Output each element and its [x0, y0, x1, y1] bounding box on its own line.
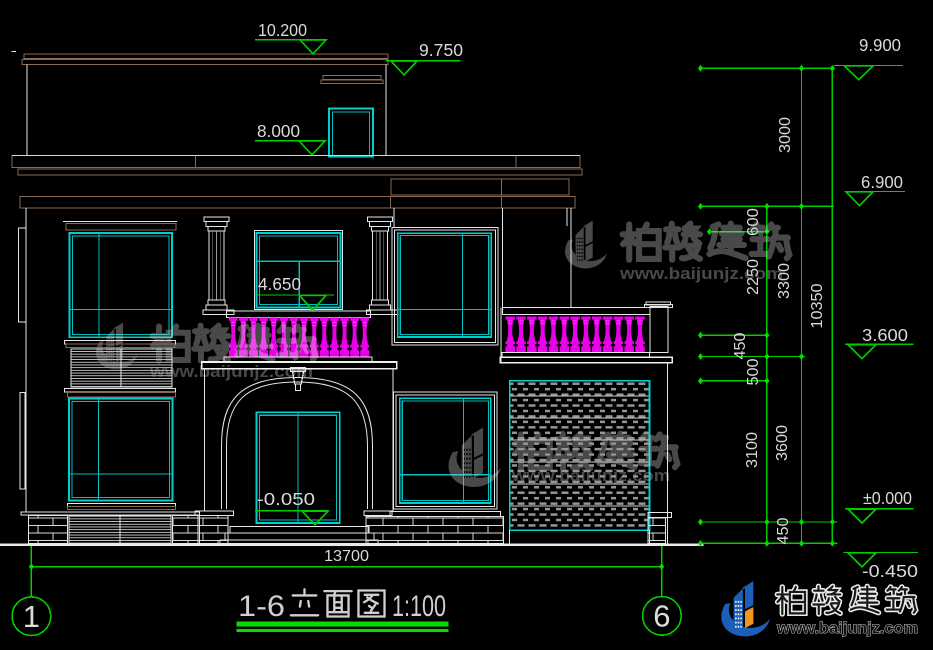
svg-text:450: 450 — [732, 332, 749, 359]
svg-text:1-6: 1-6 — [238, 590, 285, 623]
svg-text:10.200: 10.200 — [258, 20, 307, 40]
svg-text:13700: 13700 — [324, 548, 369, 565]
svg-text:3000: 3000 — [777, 117, 794, 153]
svg-text:±0.000: ±0.000 — [863, 488, 912, 508]
svg-text:8.000: 8.000 — [257, 121, 300, 141]
svg-text:6.900: 6.900 — [861, 172, 903, 192]
svg-text:9.900: 9.900 — [859, 35, 901, 55]
svg-text:9.750: 9.750 — [419, 40, 463, 60]
svg-text:-0.050: -0.050 — [257, 489, 315, 509]
svg-text:3.600: 3.600 — [862, 325, 908, 345]
svg-text:3100: 3100 — [744, 432, 761, 468]
svg-text:10350: 10350 — [809, 283, 826, 328]
svg-text:www.baijunjz.com: www.baijunjz.com — [149, 362, 313, 381]
svg-text:-0.450: -0.450 — [862, 561, 918, 581]
svg-text:www.baijunjz.com: www.baijunjz.com — [619, 264, 783, 283]
svg-text:4.650: 4.650 — [258, 274, 301, 294]
svg-text:500: 500 — [745, 358, 762, 385]
svg-text:6: 6 — [653, 599, 670, 634]
svg-text:www.baijunjz.com: www.baijunjz.com — [776, 620, 918, 637]
svg-text:1:100: 1:100 — [392, 590, 446, 623]
svg-text:www.baijunjz.com: www.baijunjz.com — [511, 466, 670, 485]
svg-text:3600: 3600 — [774, 425, 791, 461]
svg-text:450: 450 — [775, 517, 792, 544]
svg-text:1: 1 — [23, 599, 40, 634]
